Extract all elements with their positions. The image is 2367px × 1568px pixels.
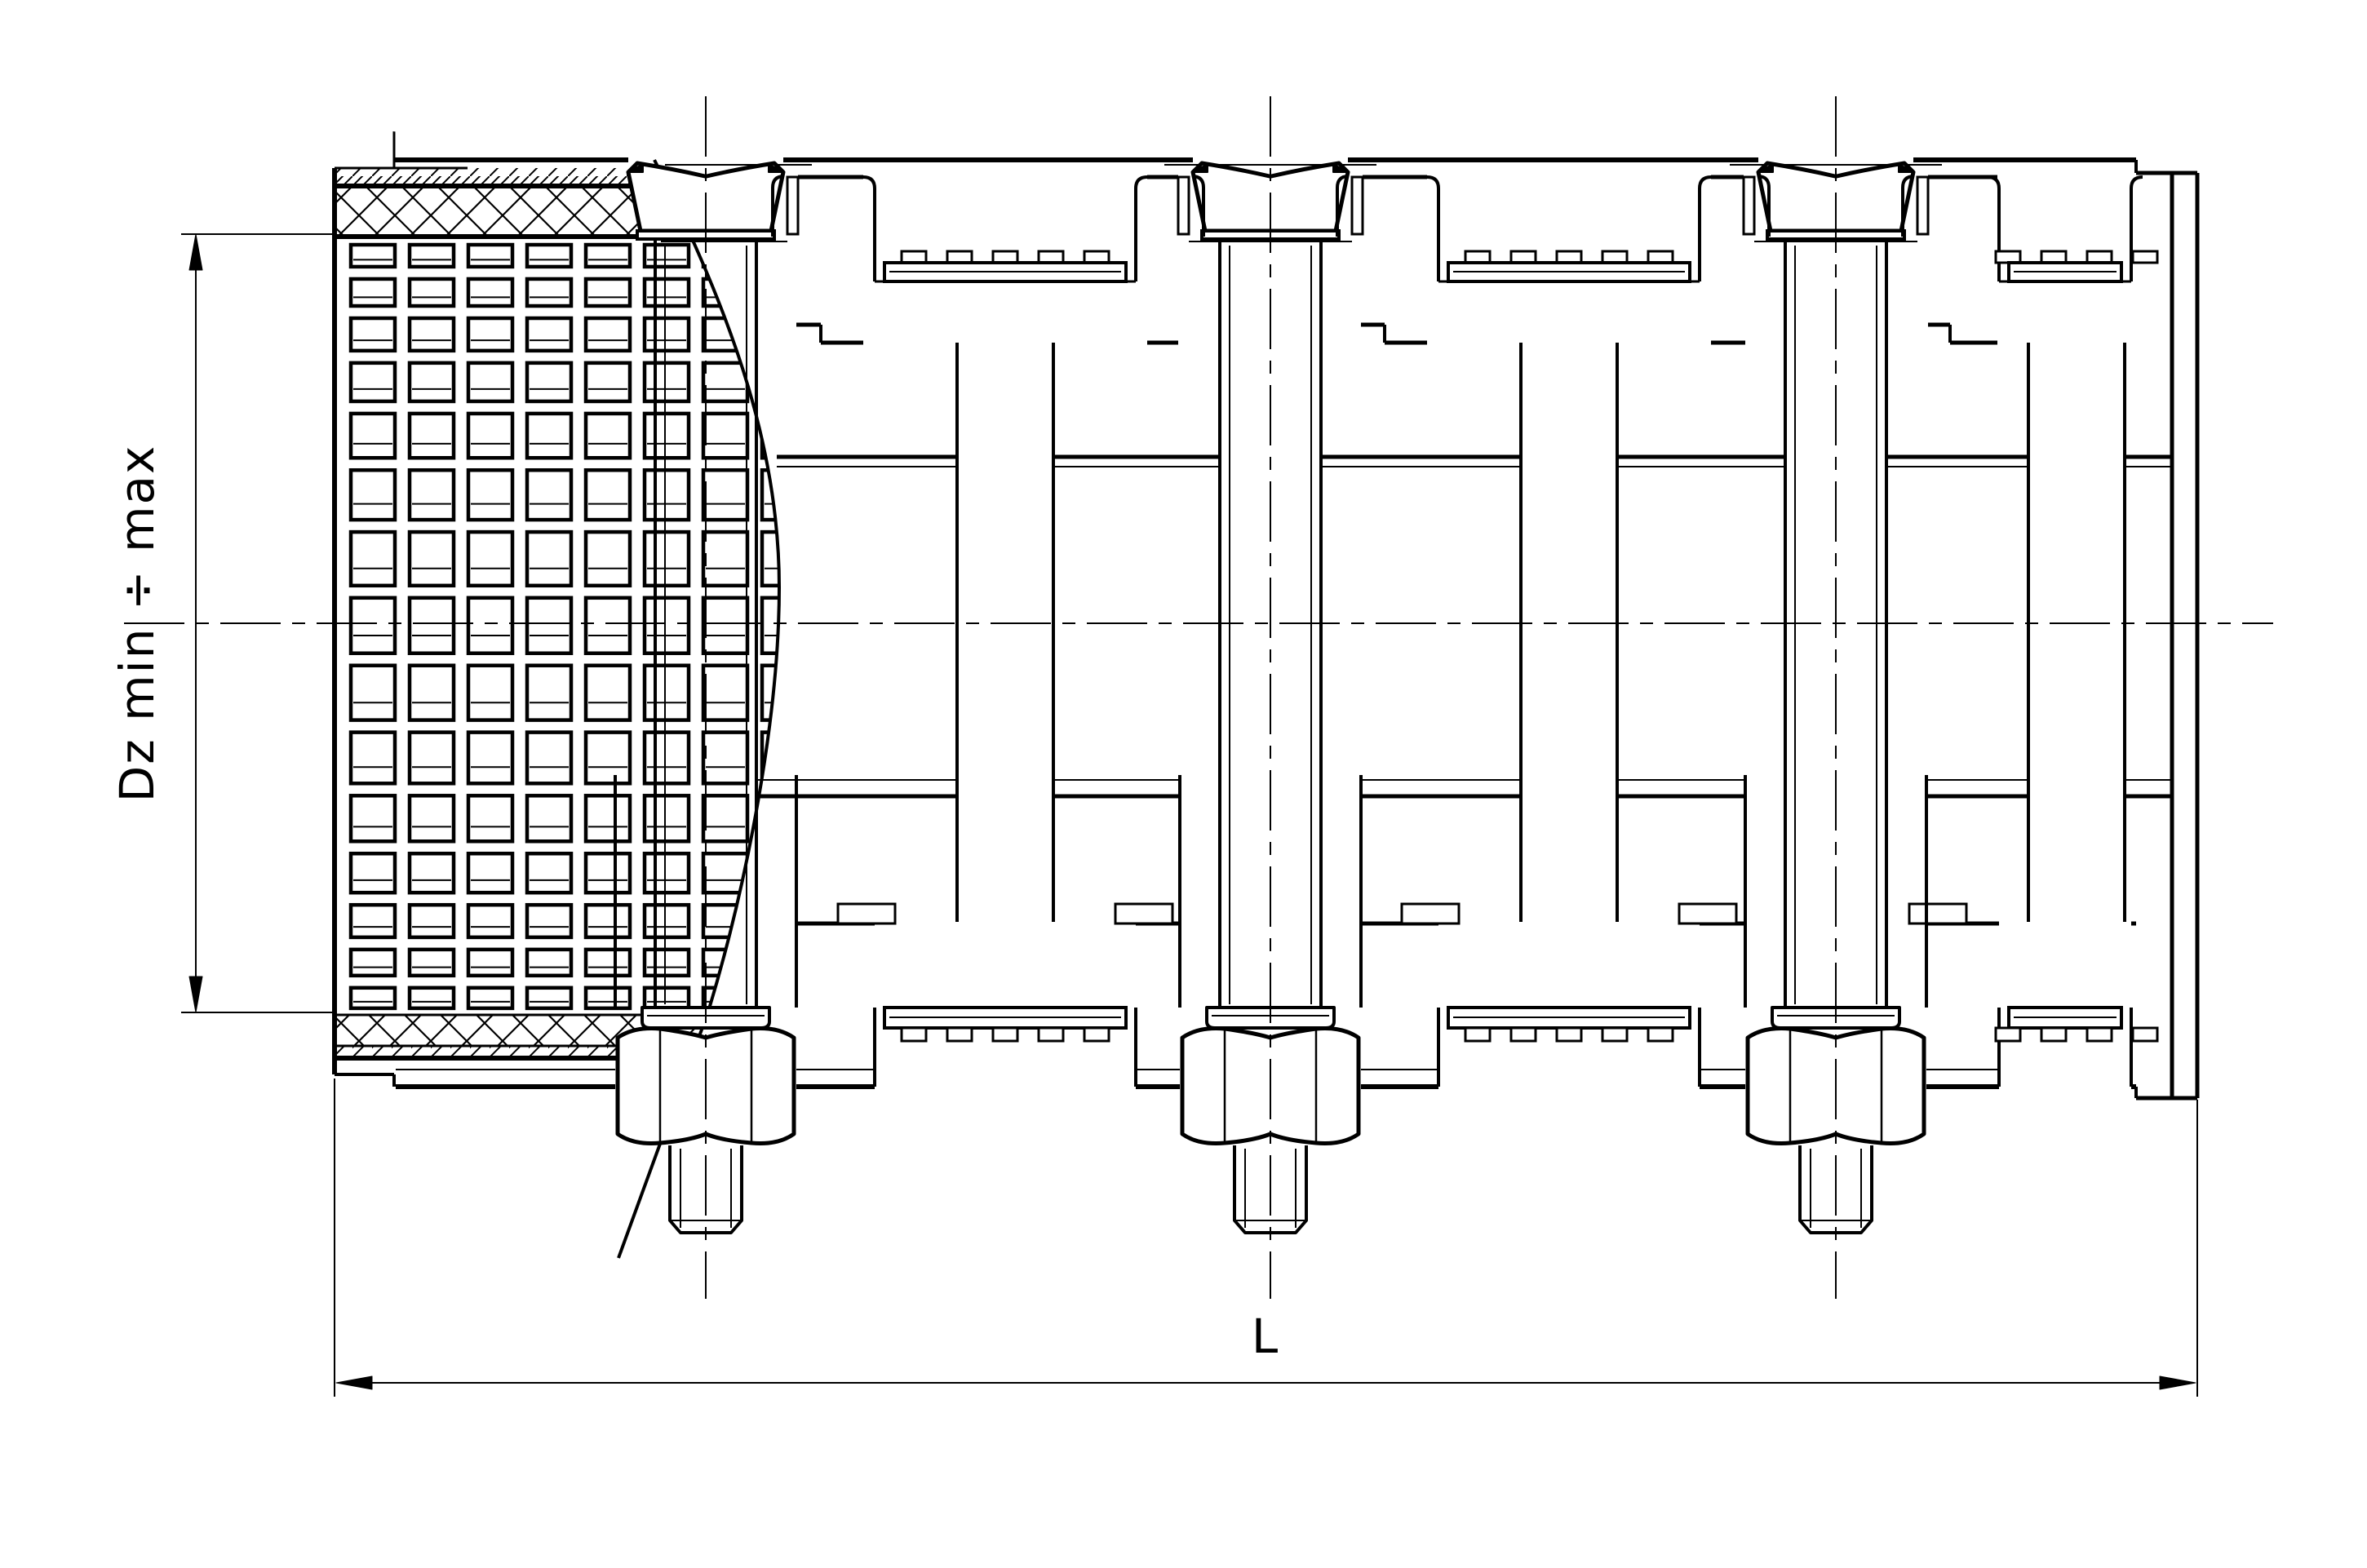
plate-tooth bbox=[1557, 251, 1581, 263]
grid-cell bbox=[527, 363, 571, 401]
grid-cell bbox=[586, 666, 630, 720]
grid-cell bbox=[468, 598, 512, 653]
plate-tooth-bottom bbox=[2133, 1028, 2157, 1041]
grid-cell bbox=[351, 363, 395, 401]
grid-cell bbox=[586, 950, 630, 976]
grid-cell bbox=[645, 853, 689, 893]
plate-tooth-bottom bbox=[1648, 1028, 1673, 1041]
plate-tooth-bottom bbox=[1039, 1028, 1063, 1041]
plate-tooth-bottom bbox=[2041, 1028, 2066, 1041]
grid-cell bbox=[762, 795, 806, 841]
plate-tooth bbox=[993, 251, 1017, 263]
grid-cell bbox=[762, 245, 806, 267]
band-tab bbox=[1909, 904, 1966, 924]
grid-cell bbox=[468, 950, 512, 976]
band-tab bbox=[1115, 904, 1172, 924]
grid-cell bbox=[527, 245, 571, 267]
grid-cell bbox=[762, 666, 806, 720]
grid-cell bbox=[468, 532, 512, 586]
grid-cell bbox=[527, 414, 571, 458]
grid-cell bbox=[762, 598, 806, 653]
grid-cell bbox=[351, 532, 395, 586]
grid-cell bbox=[527, 598, 571, 653]
pocket-wall bbox=[863, 177, 875, 281]
plate-tooth-bottom bbox=[1511, 1028, 1536, 1041]
lug-slot bbox=[1744, 177, 1754, 234]
plate-tooth bbox=[1039, 251, 1063, 263]
lug-pocket-3 bbox=[1909, 177, 2157, 1087]
grid-cell bbox=[586, 905, 630, 937]
grid-cell bbox=[468, 905, 512, 937]
pocket-wall bbox=[1136, 177, 1147, 281]
dimension-label-length: L bbox=[1252, 1309, 1279, 1364]
grid-cell bbox=[527, 905, 571, 937]
grid-cell bbox=[762, 363, 806, 401]
grid-cell bbox=[527, 666, 571, 720]
grid-cell bbox=[586, 414, 630, 458]
grid-cell bbox=[703, 795, 747, 841]
grid-cell bbox=[586, 795, 630, 841]
grid-cell bbox=[762, 532, 806, 586]
band-tab bbox=[838, 904, 895, 924]
grid-cell bbox=[410, 279, 454, 306]
grid-cell bbox=[410, 666, 454, 720]
dimensions: Dz min ÷ max L bbox=[109, 234, 2197, 1397]
grid-cell bbox=[586, 853, 630, 893]
grid-cell bbox=[703, 598, 747, 653]
grid-cell bbox=[762, 988, 806, 1008]
dimension-label-diameter: Dz min ÷ max bbox=[109, 445, 165, 803]
grid-cell bbox=[645, 905, 689, 937]
grid-cell bbox=[703, 470, 747, 520]
grid-cell bbox=[468, 795, 512, 841]
technical-drawing-page: Dz min ÷ max L bbox=[0, 0, 2367, 1568]
grid-cell bbox=[351, 279, 395, 306]
plate-tooth-bottom bbox=[1602, 1028, 1627, 1041]
grid-cell bbox=[703, 414, 747, 458]
plate-tooth bbox=[1511, 251, 1536, 263]
plate-tooth-bottom bbox=[1465, 1028, 1490, 1041]
grid-cell bbox=[762, 950, 806, 976]
lug-pocket-2 bbox=[1402, 177, 1736, 1087]
lug-slot bbox=[1178, 177, 1189, 234]
grid-cell bbox=[527, 318, 571, 351]
grid-cell bbox=[645, 414, 689, 458]
grid-cell bbox=[351, 905, 395, 937]
grid-cell bbox=[586, 532, 630, 586]
grid-cell bbox=[703, 733, 747, 784]
lug-pocket-1 bbox=[838, 177, 1172, 1087]
grid-cell bbox=[410, 532, 454, 586]
grid-cell bbox=[351, 318, 395, 351]
grid-cell bbox=[410, 363, 454, 401]
plate-tooth bbox=[902, 251, 926, 263]
grid-cell bbox=[468, 988, 512, 1008]
grid-cell bbox=[645, 988, 689, 1008]
grid-cell bbox=[527, 950, 571, 976]
grid-cell bbox=[645, 363, 689, 401]
grid-cell bbox=[645, 733, 689, 784]
grid-cell bbox=[351, 988, 395, 1008]
grid-cell bbox=[527, 853, 571, 893]
plate-tooth-bottom bbox=[902, 1028, 926, 1041]
grid-cell bbox=[351, 950, 395, 976]
grid-cell bbox=[410, 245, 454, 267]
grid-cell bbox=[586, 733, 630, 784]
grid-cell bbox=[586, 279, 630, 306]
grid-cell bbox=[703, 905, 747, 937]
arrowhead-right bbox=[2160, 1376, 2196, 1389]
grid-cell bbox=[645, 950, 689, 976]
grid-cell bbox=[351, 245, 395, 267]
grid-cell bbox=[468, 470, 512, 520]
arrowhead-up bbox=[189, 234, 202, 270]
plate-tooth-bottom bbox=[1557, 1028, 1581, 1041]
grid-cell bbox=[586, 363, 630, 401]
grid-cell bbox=[703, 666, 747, 720]
pocket-wall bbox=[1427, 177, 1438, 281]
grid-cell bbox=[703, 532, 747, 586]
band-tab bbox=[1402, 904, 1459, 924]
grid-cell bbox=[586, 988, 630, 1008]
plate-tooth bbox=[1084, 251, 1109, 263]
grid-cell bbox=[586, 598, 630, 653]
pocket-wall bbox=[1700, 177, 1711, 281]
grid-cell bbox=[645, 279, 689, 306]
grid-cell bbox=[351, 598, 395, 653]
plate-tooth-bottom bbox=[1084, 1028, 1109, 1041]
plate-tooth bbox=[2133, 251, 2157, 263]
grid-cell bbox=[410, 598, 454, 653]
plate-tooth bbox=[2041, 251, 2066, 263]
grid-cell bbox=[586, 318, 630, 351]
grid-cell bbox=[351, 470, 395, 520]
grid-cell bbox=[645, 795, 689, 841]
grid-cell bbox=[703, 245, 747, 267]
lug-slot bbox=[787, 177, 798, 234]
grid-cell bbox=[645, 532, 689, 586]
plate-tooth-bottom bbox=[947, 1028, 972, 1041]
grid-cell bbox=[351, 414, 395, 458]
grid-cell bbox=[410, 950, 454, 976]
grid-cell bbox=[351, 795, 395, 841]
grid-cell bbox=[410, 795, 454, 841]
grid-cell bbox=[410, 853, 454, 893]
grid-cell bbox=[762, 279, 806, 306]
grid-cell bbox=[527, 279, 571, 306]
grid-cell bbox=[703, 363, 747, 401]
grid-cell bbox=[468, 733, 512, 784]
grid-cell bbox=[410, 905, 454, 937]
plate-tooth bbox=[2087, 251, 2112, 263]
grid-cell bbox=[762, 414, 806, 458]
grid-cell bbox=[527, 733, 571, 784]
grid-cell bbox=[527, 532, 571, 586]
arrowhead-left bbox=[336, 1376, 372, 1389]
grid-cell bbox=[468, 318, 512, 351]
grid-cell bbox=[645, 598, 689, 653]
grid-cell bbox=[468, 245, 512, 267]
grid-cell bbox=[527, 470, 571, 520]
grid-cell bbox=[762, 853, 806, 893]
grid-cell bbox=[410, 414, 454, 458]
plate-tooth bbox=[947, 251, 972, 263]
lug-slot bbox=[1917, 177, 1928, 234]
grid-cell bbox=[586, 245, 630, 267]
grid-cell bbox=[527, 795, 571, 841]
arrowhead-down bbox=[189, 977, 202, 1012]
plate-tooth bbox=[1465, 251, 1490, 263]
grid-cell bbox=[645, 318, 689, 351]
grid-cell bbox=[762, 905, 806, 937]
grid-cell bbox=[468, 363, 512, 401]
plate-tooth bbox=[1602, 251, 1627, 263]
grid-cell bbox=[410, 988, 454, 1008]
pipe-clamp-drawing: Dz min ÷ max L bbox=[0, 0, 2367, 1568]
grid-cell bbox=[645, 470, 689, 520]
grid-cell bbox=[586, 470, 630, 520]
grid-cell bbox=[468, 853, 512, 893]
pocket-wall bbox=[2131, 177, 2143, 281]
plate-tooth bbox=[1648, 251, 1673, 263]
grid-cell bbox=[410, 733, 454, 784]
plate-tooth-bottom bbox=[1996, 1028, 2020, 1041]
grid-cell bbox=[351, 853, 395, 893]
grid-cell bbox=[645, 245, 689, 267]
grid-cell bbox=[410, 470, 454, 520]
grid-cell bbox=[645, 666, 689, 720]
grid-cell bbox=[468, 414, 512, 458]
band-tab bbox=[1679, 904, 1736, 924]
grid-cell bbox=[410, 318, 454, 351]
plate-tooth bbox=[1996, 251, 2020, 263]
pocket-wall bbox=[1988, 177, 1999, 281]
plate-tooth-bottom bbox=[993, 1028, 1017, 1041]
clamp-body bbox=[335, 160, 2197, 1233]
grid-cell bbox=[468, 279, 512, 306]
grid-cell bbox=[468, 666, 512, 720]
grid-cell bbox=[351, 733, 395, 784]
plate-tooth-bottom bbox=[2087, 1028, 2112, 1041]
grid-cell bbox=[527, 988, 571, 1008]
lug-slot bbox=[1352, 177, 1363, 234]
grid-cell bbox=[351, 666, 395, 720]
